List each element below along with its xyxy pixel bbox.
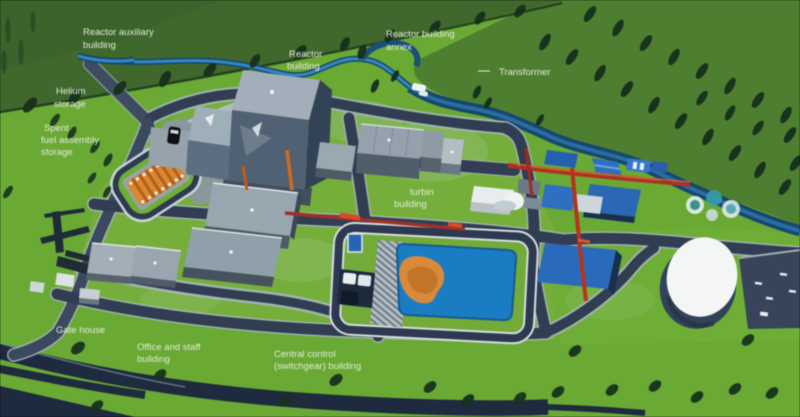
svg-text:Spent: Spent [44,123,69,134]
svg-text:Office and staff: Office and staff [137,342,201,353]
svg-text:fuel assembly: fuel assembly [41,135,99,146]
svg-text:Central control: Central control [274,349,336,360]
svg-text:storage: storage [54,99,86,110]
svg-text:storage: storage [41,147,73,158]
svg-text:building: building [287,61,320,72]
svg-text:building: building [394,199,427,210]
svg-text:Reactor auxiliary: Reactor auxiliary [83,27,154,38]
svg-text:annex: annex [386,42,412,53]
svg-text:(switchgear) building: (switchgear) building [274,361,361,372]
svg-text:Reactor building: Reactor building [386,29,455,40]
svg-text:Gate house: Gate house [56,325,105,336]
svg-text:building: building [137,354,170,365]
svg-text:turbin: turbin [410,187,434,198]
svg-text:Transformer: Transformer [499,67,550,78]
svg-text:Helium: Helium [56,86,86,97]
svg-text:Reactor: Reactor [289,49,322,60]
svg-text:building: building [83,40,116,51]
